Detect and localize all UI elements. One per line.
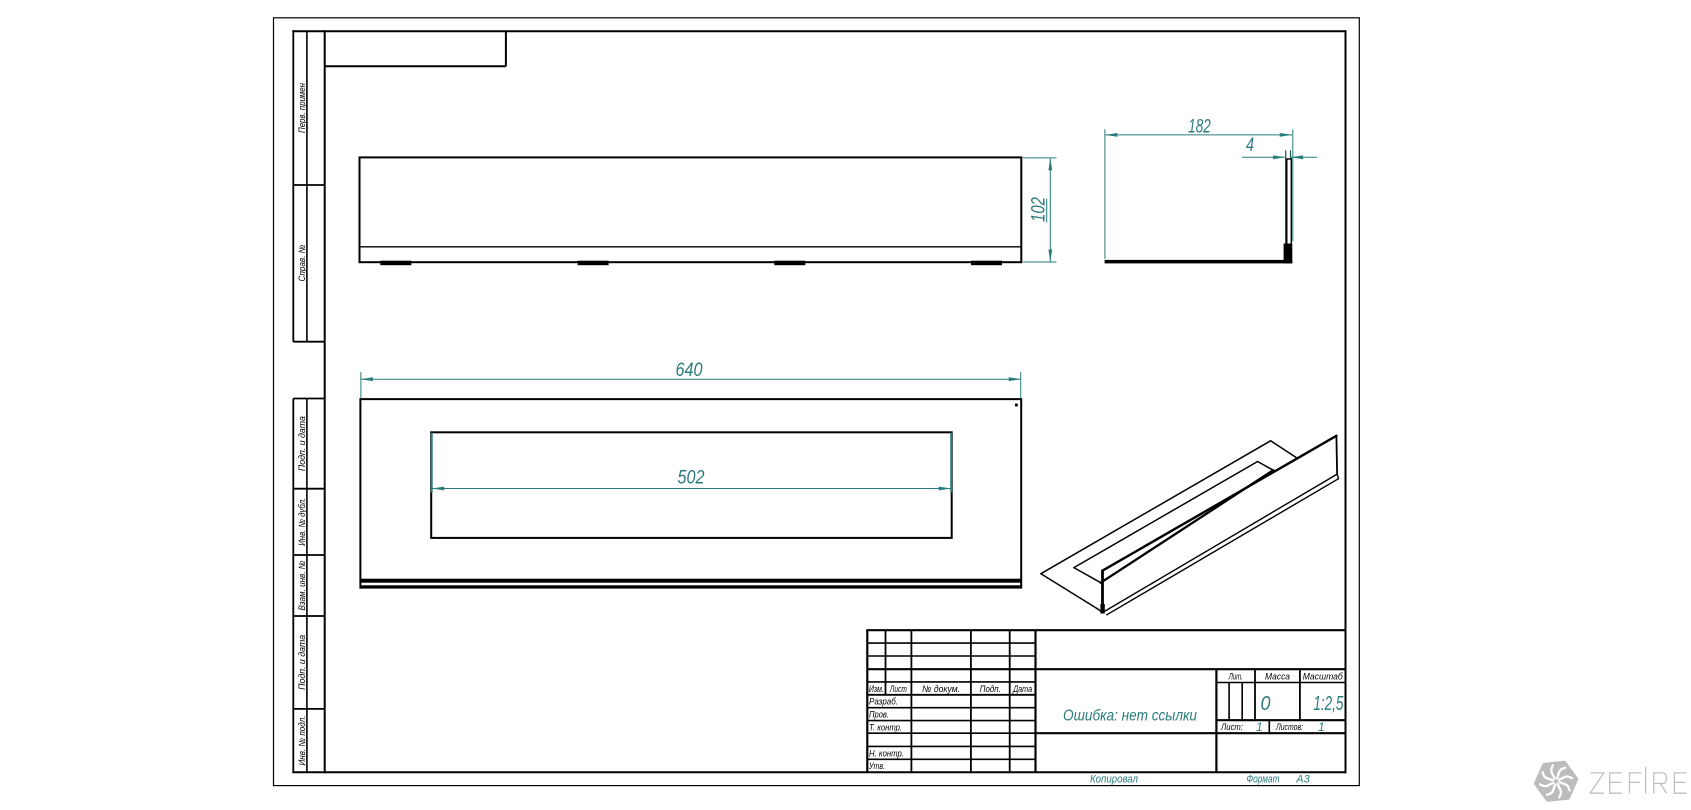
- svg-text:Подп.: Подп.: [980, 684, 1001, 695]
- svg-text:Масса: Масса: [1265, 672, 1290, 683]
- svg-text:1: 1: [1256, 720, 1263, 734]
- svg-text:А3: А3: [1295, 774, 1310, 786]
- svg-text:502: 502: [678, 468, 705, 489]
- svg-text:Подп. и дата: Подп. и дата: [297, 416, 307, 471]
- svg-text:1: 1: [1318, 720, 1325, 734]
- svg-text:0: 0: [1261, 693, 1271, 715]
- svg-text:Лист: Лист: [889, 684, 907, 695]
- svg-text:182: 182: [1188, 116, 1211, 137]
- svg-text:Масштаб: Масштаб: [1303, 672, 1344, 683]
- svg-text:Лист:: Лист:: [1220, 722, 1243, 733]
- svg-text:Т. контр.: Т. контр.: [869, 723, 902, 734]
- svg-text:Ошибка: нет ссылки: Ошибка: нет ссылки: [1063, 708, 1197, 725]
- svg-text:Лит.: Лит.: [1228, 672, 1243, 683]
- svg-text:Н. контр.: Н. контр.: [869, 748, 904, 759]
- svg-text:Взам. инв. №: Взам. инв. №: [297, 560, 307, 610]
- svg-text:Изм.: Изм.: [869, 684, 884, 695]
- svg-text:Подп. и дата: Подп. и дата: [297, 635, 307, 690]
- svg-text:1:2,5: 1:2,5: [1313, 693, 1344, 715]
- svg-text:Формат: Формат: [1247, 774, 1280, 786]
- svg-text:№ докум.: № докум.: [922, 684, 960, 695]
- svg-text:Дата: Дата: [1012, 684, 1032, 695]
- svg-text:Справ. №: Справ. №: [297, 244, 307, 281]
- svg-text:Листов:: Листов:: [1275, 722, 1303, 733]
- svg-text:Перв. примен: Перв. примен: [297, 83, 307, 133]
- svg-text:4: 4: [1246, 135, 1254, 156]
- svg-text:640: 640: [676, 360, 703, 381]
- svg-text:Инв. № дубл.: Инв. № дубл.: [297, 498, 307, 546]
- svg-text:Копировал: Копировал: [1090, 774, 1138, 786]
- svg-text:Утв.: Утв.: [868, 761, 885, 772]
- svg-text:Разраб.: Разраб.: [869, 697, 898, 708]
- svg-text:Пров.: Пров.: [869, 710, 889, 721]
- svg-text:Инв. № подл.: Инв. № подл.: [297, 716, 307, 766]
